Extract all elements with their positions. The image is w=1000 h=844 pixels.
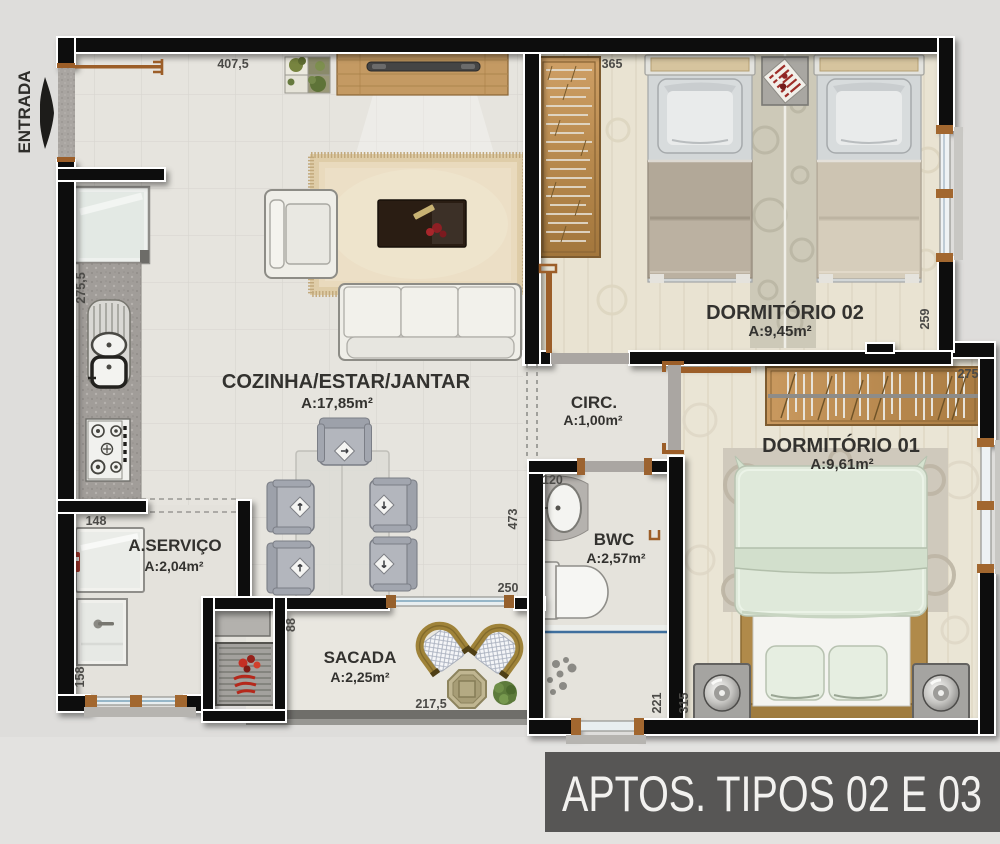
svg-text:SACADA: SACADA <box>324 648 397 667</box>
svg-text:88: 88 <box>284 618 298 632</box>
svg-text:217,5: 217,5 <box>415 697 446 711</box>
svg-text:148: 148 <box>86 514 107 528</box>
svg-text:A:2,57m²: A:2,57m² <box>586 550 645 566</box>
svg-text:221: 221 <box>650 693 664 714</box>
svg-text:BWC: BWC <box>594 530 635 549</box>
svg-text:158: 158 <box>73 667 87 688</box>
svg-text:275: 275 <box>958 367 979 381</box>
svg-text:315: 315 <box>677 693 691 714</box>
svg-text:A:9,45m²: A:9,45m² <box>748 323 811 340</box>
svg-text:DORMITÓRIO 01: DORMITÓRIO 01 <box>762 433 920 457</box>
svg-text:DORMITÓRIO 02: DORMITÓRIO 02 <box>706 300 864 324</box>
svg-text:A:2,04m²: A:2,04m² <box>144 558 203 574</box>
svg-text:473: 473 <box>506 509 520 530</box>
svg-text:A:1,00m²: A:1,00m² <box>563 412 622 428</box>
svg-text:A:9,61m²: A:9,61m² <box>810 456 873 473</box>
svg-text:275,5: 275,5 <box>74 272 88 303</box>
svg-text:407,5: 407,5 <box>217 57 248 71</box>
svg-text:365: 365 <box>602 57 623 71</box>
svg-text:ENTRADA: ENTRADA <box>15 70 34 153</box>
svg-text:APTOS. TIPOS 02 E 03: APTOS. TIPOS 02 E 03 <box>562 766 982 822</box>
svg-text:120: 120 <box>542 473 563 487</box>
svg-text:A.SERVIÇO: A.SERVIÇO <box>128 536 221 555</box>
svg-text:A:17,85m²: A:17,85m² <box>301 395 373 412</box>
svg-text:250: 250 <box>498 581 519 595</box>
svg-text:A:2,25m²: A:2,25m² <box>330 669 389 685</box>
svg-text:CIRC.: CIRC. <box>571 393 617 412</box>
svg-text:259: 259 <box>918 309 932 330</box>
svg-text:COZINHA/ESTAR/JANTAR: COZINHA/ESTAR/JANTAR <box>222 371 471 393</box>
